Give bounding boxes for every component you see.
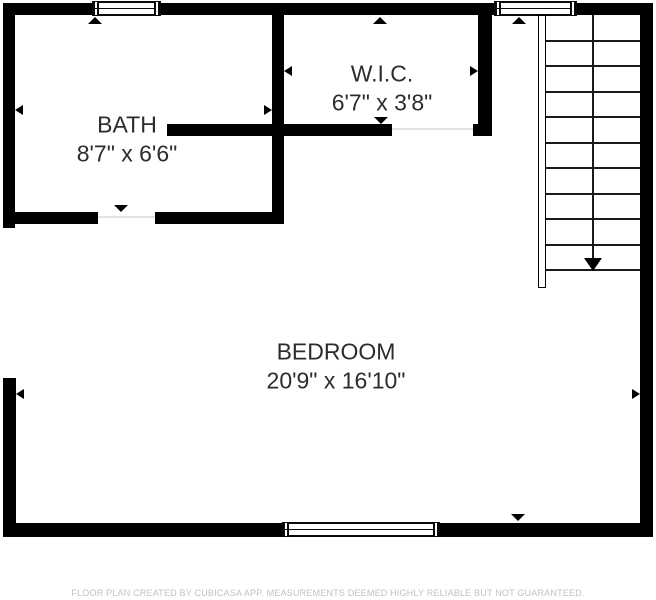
measure-arrow-up-icon xyxy=(88,17,102,24)
measure-arrow-right-icon xyxy=(470,66,478,76)
wic-door-opening xyxy=(392,128,473,130)
window-pane-line xyxy=(94,8,159,10)
measure-arrow-up-icon xyxy=(512,17,526,24)
measure-arrow-down-icon xyxy=(114,205,128,212)
wic-room-name: W.I.C. xyxy=(351,63,414,86)
stair-direction-line xyxy=(592,15,594,258)
window-end-cap xyxy=(154,2,160,15)
wic-room-dimensions: 6'7" x 3'8" xyxy=(332,92,433,115)
wall-bath-bottom-left xyxy=(15,212,98,224)
bath-room-name: BATH xyxy=(97,114,157,137)
bedroom-room-dimensions: 20'9" x 16'10" xyxy=(267,370,406,393)
stair-hall-window-symbol xyxy=(494,1,577,16)
measure-arrow-left-icon xyxy=(284,66,292,76)
stair-stringer xyxy=(538,15,546,288)
window-pane-line xyxy=(284,529,438,531)
disclaimer-text: FLOOR PLAN CREATED BY CUBICASA APP. MEAS… xyxy=(0,588,656,598)
floor-plan: BATH 8'7" x 6'6" W.I.C. 6'7" x 3'8" BEDR… xyxy=(0,0,656,600)
wall-exterior-bottom-right xyxy=(440,523,653,537)
bath-door-opening xyxy=(98,216,155,218)
wall-bath-wic-divider xyxy=(272,15,284,224)
bedroom-window-symbol xyxy=(282,522,440,537)
wall-exterior-left-upper xyxy=(3,3,15,228)
wall-bath-bottom-right xyxy=(155,212,272,224)
stairs-down-arrow-icon xyxy=(584,258,602,271)
wall-wic-right xyxy=(478,15,492,136)
wall-exterior-left-lower xyxy=(3,378,16,537)
wall-exterior-right xyxy=(640,3,653,537)
wall-exterior-bottom-left xyxy=(3,523,282,537)
bedroom-room-name: BEDROOM xyxy=(277,341,396,364)
measure-arrow-down-icon xyxy=(374,117,388,124)
measure-arrow-right-icon xyxy=(632,389,640,399)
wall-wic-bottom xyxy=(167,124,392,136)
window-end-cap xyxy=(433,523,439,536)
measure-arrow-down-icon xyxy=(511,514,525,521)
bath-room-dimensions: 8'7" x 6'6" xyxy=(77,143,178,166)
measure-arrow-left-icon xyxy=(15,105,23,115)
window-end-cap xyxy=(570,2,576,15)
measure-arrow-up-icon xyxy=(373,17,387,24)
bath-window-symbol xyxy=(92,1,161,16)
measure-arrow-left-icon xyxy=(16,389,24,399)
measure-arrow-right-icon xyxy=(264,105,272,115)
window-pane-line xyxy=(496,8,575,10)
